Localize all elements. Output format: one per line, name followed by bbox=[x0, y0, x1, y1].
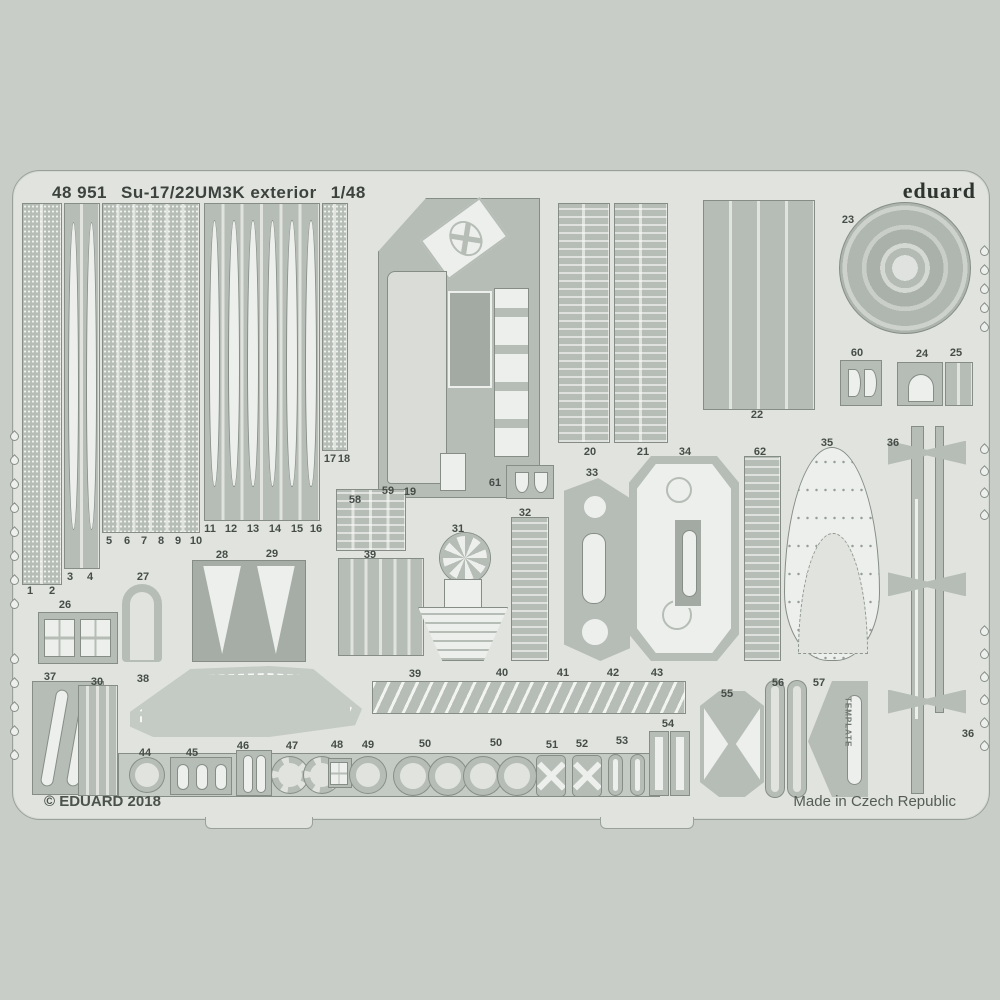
part-number-label-50: 50 bbox=[490, 737, 502, 749]
part-number-label-54: 54 bbox=[662, 718, 674, 730]
brand-logo: eduard bbox=[903, 178, 976, 204]
etch-droplet bbox=[978, 264, 991, 277]
etch-droplet bbox=[978, 625, 991, 638]
etch-droplet bbox=[978, 487, 991, 500]
part-number-label-32: 32 bbox=[519, 507, 531, 519]
part-number-label-23: 23 bbox=[842, 214, 854, 226]
part-number-label-28: 28 bbox=[216, 549, 228, 561]
etch-droplet bbox=[8, 677, 21, 690]
part-number-label-53: 53 bbox=[616, 735, 628, 747]
part-number-label-1: 1 bbox=[27, 585, 33, 597]
part-number-label-39: 39 bbox=[409, 668, 421, 680]
etch-droplet bbox=[978, 717, 991, 730]
labels-layer: 1234567891011121314151617181920212223602… bbox=[0, 0, 1000, 1000]
sheet-title: Su-17/22UM3K exterior bbox=[121, 183, 317, 202]
sheet-title-line: 48 951Su-17/22UM3K exterior1/48 bbox=[52, 183, 380, 203]
part-number-label-17: 17 bbox=[324, 453, 336, 465]
part-number-label-9: 9 bbox=[175, 535, 181, 547]
part-number-label-22: 22 bbox=[751, 409, 763, 421]
part-number-label-58: 58 bbox=[349, 494, 361, 506]
part-number-label-46: 46 bbox=[237, 740, 249, 752]
photoetch-sheet-photo: 48 951Su-17/22UM3K exterior1/48 eduard T… bbox=[0, 0, 1000, 1000]
part-number-label-11: 11 bbox=[204, 523, 216, 535]
part-number-label-61: 61 bbox=[489, 477, 501, 489]
part-number-label-14: 14 bbox=[269, 523, 281, 535]
part-number-label-2: 2 bbox=[49, 585, 55, 597]
made-in: Made in Czech Republic bbox=[793, 793, 956, 810]
part-number-label-36: 36 bbox=[887, 437, 899, 449]
part-number-label-35: 35 bbox=[821, 437, 833, 449]
sheet-scale: 1/48 bbox=[331, 183, 366, 202]
part-number-label-10: 10 bbox=[190, 535, 202, 547]
part-number-label-60: 60 bbox=[851, 347, 863, 359]
part-number-label-26: 26 bbox=[59, 599, 71, 611]
etch-droplet bbox=[978, 302, 991, 315]
etch-droplet bbox=[8, 526, 21, 539]
part-number-label-45: 45 bbox=[186, 747, 198, 759]
etch-droplet bbox=[8, 502, 21, 515]
part-number-label-15: 15 bbox=[291, 523, 303, 535]
etch-droplet bbox=[978, 283, 991, 296]
part-number-label-25: 25 bbox=[950, 347, 962, 359]
part-number-label-30: 30 bbox=[91, 676, 103, 688]
part-number-label-49: 49 bbox=[362, 739, 374, 751]
part-number-label-31: 31 bbox=[452, 523, 464, 535]
etch-droplet bbox=[8, 430, 21, 443]
etch-droplet bbox=[8, 598, 21, 611]
part-number-label-39: 39 bbox=[364, 549, 376, 561]
etch-droplet bbox=[978, 694, 991, 707]
part-number-label-41: 41 bbox=[557, 667, 569, 679]
part-number-label-7: 7 bbox=[141, 535, 147, 547]
part-number-label-27: 27 bbox=[137, 571, 149, 583]
part-number-label-29: 29 bbox=[266, 548, 278, 560]
part-number-label-48: 48 bbox=[331, 739, 343, 751]
part-number-label-16: 16 bbox=[310, 523, 322, 535]
part-number-label-19: 19 bbox=[404, 486, 416, 498]
etch-droplet bbox=[978, 740, 991, 753]
part-number-label-24: 24 bbox=[916, 348, 928, 360]
part-number-label-21: 21 bbox=[637, 446, 649, 458]
part-number-label-13: 13 bbox=[247, 523, 259, 535]
part-number-label-43: 43 bbox=[651, 667, 663, 679]
etch-droplet bbox=[8, 550, 21, 563]
part-number-label-42: 42 bbox=[607, 667, 619, 679]
part-number-label-57: 57 bbox=[813, 677, 825, 689]
part-number-label-20: 20 bbox=[584, 446, 596, 458]
etch-droplet bbox=[978, 245, 991, 258]
part-number-label-56: 56 bbox=[772, 677, 784, 689]
etch-droplet bbox=[8, 701, 21, 714]
part-number-label-18: 18 bbox=[338, 453, 350, 465]
part-number-label-34: 34 bbox=[679, 446, 691, 458]
etch-droplet bbox=[8, 478, 21, 491]
part-number-label-62: 62 bbox=[754, 446, 766, 458]
part-number-label-3: 3 bbox=[67, 571, 73, 583]
part-number-label-44: 44 bbox=[139, 747, 151, 759]
etch-droplet bbox=[978, 648, 991, 661]
etch-droplet bbox=[978, 443, 991, 456]
part-number-label-4: 4 bbox=[87, 571, 93, 583]
part-number-label-6: 6 bbox=[124, 535, 130, 547]
part-number-label-55: 55 bbox=[721, 688, 733, 700]
part-number-label-38: 38 bbox=[137, 673, 149, 685]
etch-droplet bbox=[978, 509, 991, 522]
sheet-header: 48 951Su-17/22UM3K exterior1/48 eduard bbox=[52, 178, 976, 204]
etch-droplet bbox=[978, 465, 991, 478]
etch-droplet bbox=[8, 653, 21, 666]
etch-droplet bbox=[978, 321, 991, 334]
part-number-label-59: 59 bbox=[382, 485, 394, 497]
part-number-label-8: 8 bbox=[158, 535, 164, 547]
part-number-label-36: 36 bbox=[962, 728, 974, 740]
etch-droplet bbox=[978, 671, 991, 684]
part-number-label-47: 47 bbox=[286, 740, 298, 752]
etch-droplet bbox=[8, 725, 21, 738]
part-number-label-40: 40 bbox=[496, 667, 508, 679]
catalog-number: 48 951 bbox=[52, 183, 107, 202]
part-number-label-5: 5 bbox=[106, 535, 112, 547]
etch-droplet bbox=[8, 749, 21, 762]
part-number-label-12: 12 bbox=[225, 523, 237, 535]
etch-droplet bbox=[8, 574, 21, 587]
part-number-label-37: 37 bbox=[44, 671, 56, 683]
sheet-footer: © EDUARD 2018 Made in Czech Republic bbox=[44, 793, 956, 810]
part-number-label-51: 51 bbox=[546, 739, 558, 751]
part-number-label-52: 52 bbox=[576, 738, 588, 750]
part-number-label-50: 50 bbox=[419, 738, 431, 750]
etch-droplet bbox=[8, 454, 21, 467]
part-number-label-33: 33 bbox=[586, 467, 598, 479]
copyright: © EDUARD 2018 bbox=[44, 793, 161, 810]
